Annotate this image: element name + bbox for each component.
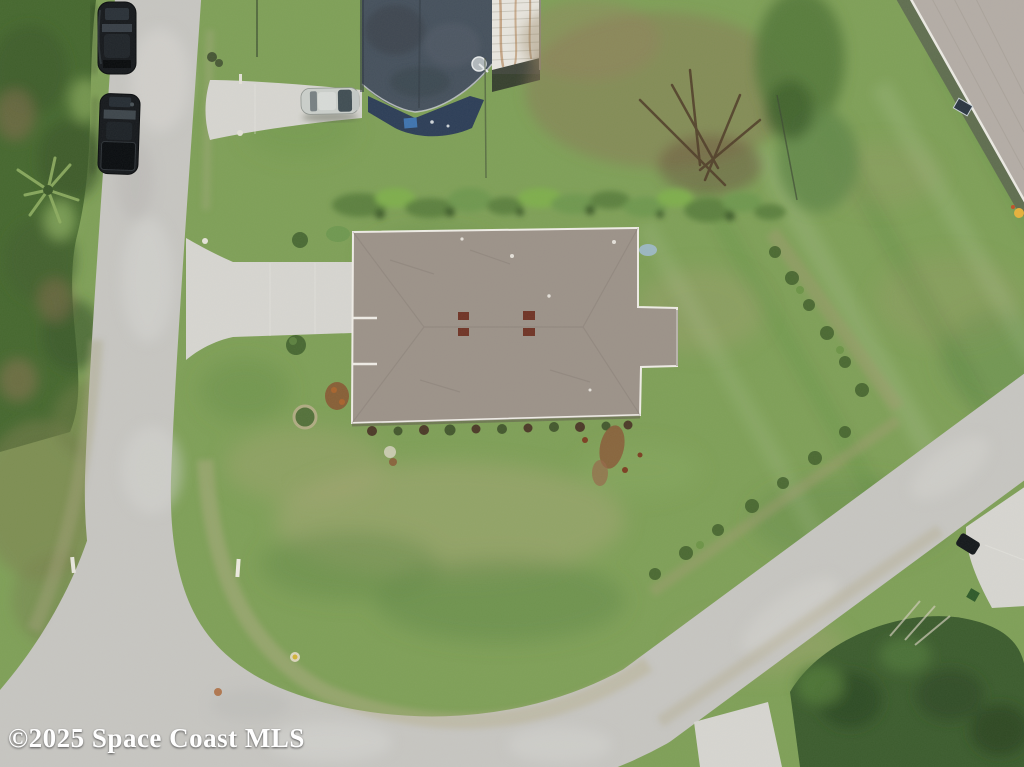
- aerial-photo: ©2025 Space Coast MLS: [0, 0, 1024, 767]
- photo-grain-overlay: [0, 0, 1024, 767]
- aerial-photo-canvas: ©2025 Space Coast MLS: [0, 0, 1024, 767]
- watermark-text: ©2025 Space Coast MLS: [8, 723, 305, 753]
